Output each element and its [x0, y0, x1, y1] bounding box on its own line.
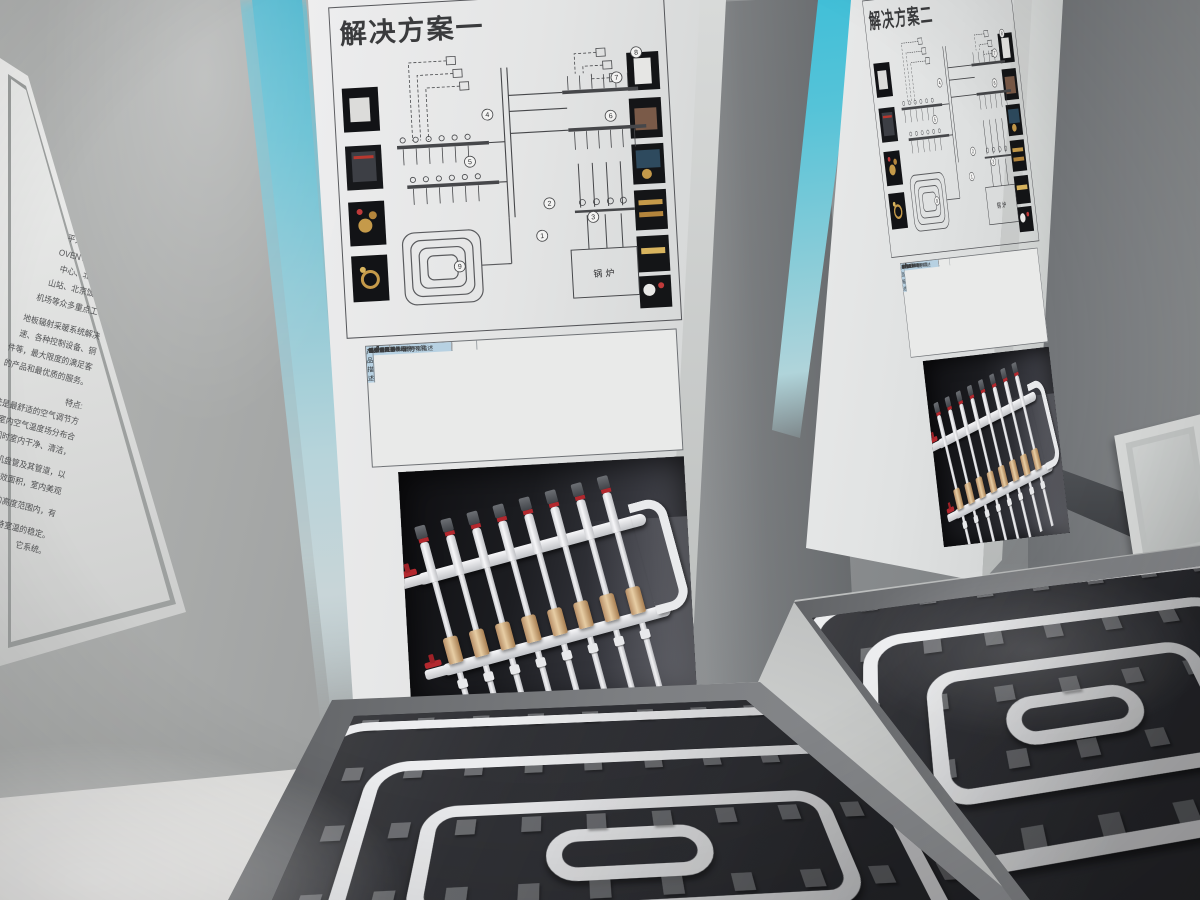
mf-drop-bot: [1017, 487, 1031, 538]
diagram-callout-numbers: 876452319: [443, 46, 654, 272]
callout-number: 2: [547, 201, 551, 208]
solution1-piping-diagram: 锅炉 876452319: [334, 35, 679, 333]
callout-number: 5: [468, 159, 472, 166]
mf-group: [398, 456, 697, 712]
mf-meter: [1011, 362, 1024, 399]
mf-act: [547, 607, 569, 637]
mf-meter: [944, 396, 957, 433]
mf-nut: [639, 628, 651, 639]
mf-act: [1009, 459, 1020, 482]
manifold-display-niche: [923, 347, 1070, 547]
piping-schematic: 锅炉 876452319: [340, 45, 672, 324]
heating-manifold-model: [923, 347, 1070, 547]
mf-drop-bot: [1040, 476, 1054, 527]
mf-group: [925, 347, 1069, 547]
mf-act: [625, 585, 647, 615]
board1-content: 解决方案一: [310, 0, 722, 769]
mf-meter: [544, 489, 567, 536]
mf-act: [975, 476, 986, 499]
mf-nut: [1018, 492, 1024, 501]
floor-spotlight: [0, 730, 430, 900]
scheme-description-label: 方案描述: [366, 341, 477, 356]
heating-pipe-loop: [400, 789, 872, 900]
mf-nut: [613, 635, 625, 646]
mf-nut: [995, 503, 1001, 512]
callout-number: 3: [591, 214, 595, 221]
mf-valve-bot: [947, 510, 959, 523]
mf-act: [494, 621, 516, 651]
heating-manifold-model: [398, 456, 697, 712]
mf-act: [468, 628, 490, 658]
mf-nut: [973, 515, 979, 524]
mf-meter: [570, 482, 593, 529]
mf-valve-top: [399, 573, 427, 589]
exhibition-showroom-scene: 才· 其产品文托普于2003年一-欧文托的共同努力公司通过了司先后两次增平方米的…: [0, 0, 1200, 900]
mf-nut: [1007, 498, 1013, 507]
mf-act: [986, 470, 997, 493]
mf-meter: [933, 402, 946, 439]
mf-nut: [509, 664, 521, 675]
mf-act: [1020, 453, 1031, 476]
mf-meter: [989, 373, 1002, 410]
mf-nut: [483, 671, 495, 682]
mf-act: [520, 614, 542, 644]
display-board-solution2: 解决方案二 编号产品名称产品描述 1 水力分压器 2: [790, 0, 1050, 600]
mf-drop-bot: [613, 629, 636, 694]
pipe-fixing-stud: [816, 748, 839, 761]
mf-drop-bot: [1006, 493, 1020, 544]
mf-act: [573, 600, 595, 630]
callout-number: 6: [609, 113, 613, 120]
solution1-product-table: 编号产品名称产品描述 1 水力分压器 2 锅炉循环系统组件 3: [365, 328, 683, 467]
mf-nut: [561, 650, 573, 661]
scheme-description-label: 方案描述: [901, 258, 951, 271]
mf-meter: [596, 475, 619, 522]
mf-act: [964, 481, 975, 504]
callout-number: 9: [458, 264, 462, 271]
mf-nut: [962, 520, 968, 529]
solution2-product-table: 编号产品名称产品描述 1 水力分压器 2 锅炉循环系统组件 3: [900, 248, 1048, 358]
floor-spotlight-right: [850, 560, 1200, 740]
mf-valve-bot: [424, 664, 452, 680]
mf-nut: [587, 643, 599, 654]
callout-number: 4: [485, 112, 489, 119]
mf-act: [997, 464, 1008, 487]
mf-nut: [1040, 481, 1046, 490]
mf-meter: [967, 385, 980, 422]
callout-number: 1: [540, 233, 544, 240]
mf-nut: [457, 678, 469, 689]
boiler-label: 锅炉: [593, 267, 618, 279]
mf-meter: [492, 503, 515, 550]
mf-nut: [535, 657, 547, 668]
callout-number: 7: [614, 75, 618, 82]
wall-spotlight: [40, 0, 340, 430]
mf-meter: [414, 524, 437, 571]
mf-act: [1031, 447, 1042, 470]
callout-number: 8: [634, 50, 638, 57]
mf-valve-top: [930, 439, 942, 452]
mf-act: [599, 592, 621, 622]
mf-nut: [1029, 486, 1035, 495]
solution2-piping-diagram: [867, 20, 1037, 254]
mf-meter: [440, 517, 463, 564]
mf-nut: [984, 509, 990, 518]
manifold-display-niche: [398, 456, 697, 712]
mf-meter: [1000, 368, 1013, 405]
mf-drop-bot: [639, 622, 662, 687]
mf-meter: [518, 496, 541, 543]
mf-meter: [956, 390, 969, 427]
display-board-solution1: 解决方案一: [300, 0, 730, 770]
mf-act: [953, 487, 964, 510]
mf-meter: [978, 379, 991, 416]
solution1-title: 解决方案一: [338, 5, 485, 52]
mf-meter: [466, 510, 489, 557]
mf-act: [442, 635, 464, 665]
mf-drop-bot: [1028, 482, 1042, 533]
